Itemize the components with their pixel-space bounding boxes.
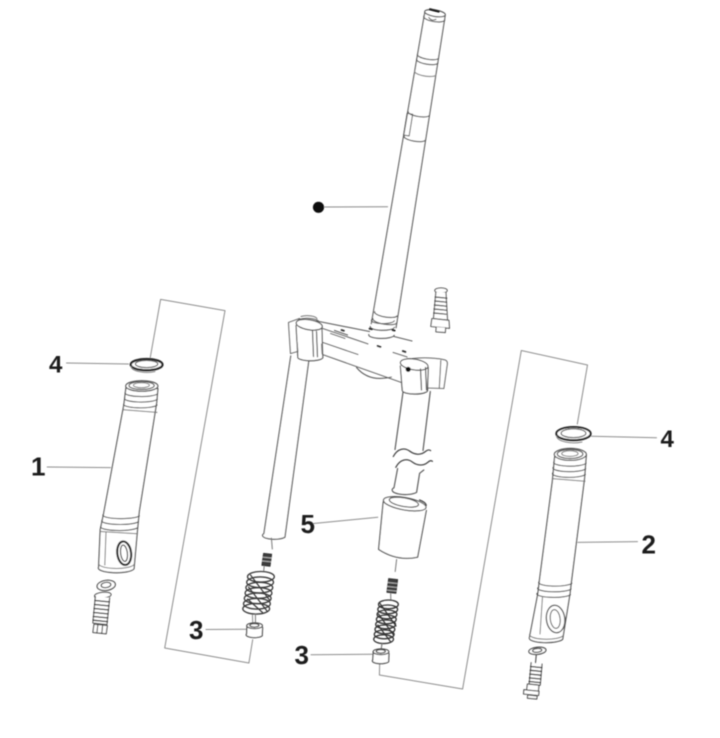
svg-text:4: 4 [49,352,63,379]
svg-text:3: 3 [189,615,203,645]
svg-text:4: 4 [661,426,675,453]
svg-text:2: 2 [642,529,656,559]
svg-text:3: 3 [295,640,309,670]
svg-text:1: 1 [31,451,45,481]
svg-text:5: 5 [301,509,315,539]
